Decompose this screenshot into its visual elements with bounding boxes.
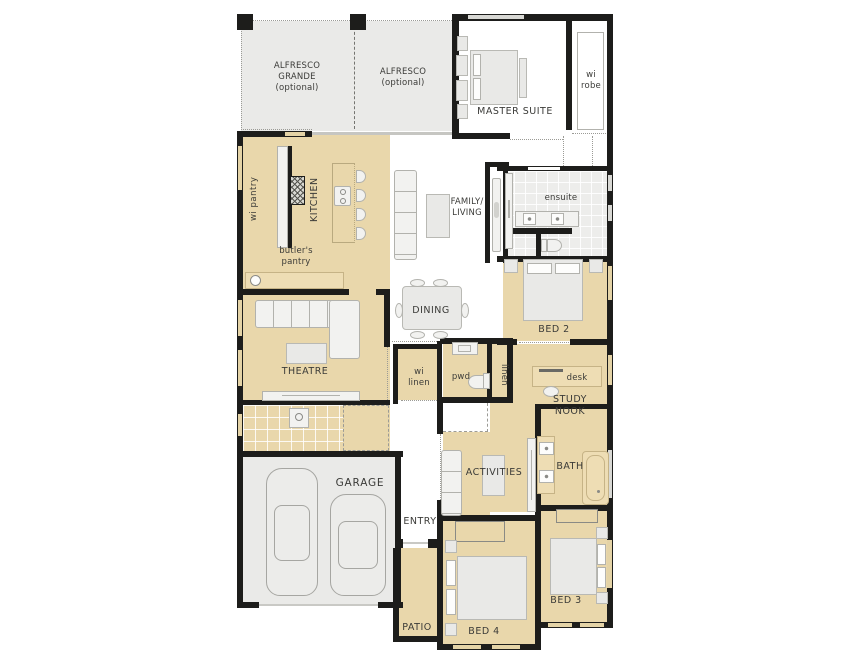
- bed4-pillow: [446, 560, 456, 586]
- pwd-basin-bowl: [458, 345, 471, 352]
- car-roof: [274, 505, 310, 561]
- bed4-bed: [457, 556, 527, 620]
- bed2-robe-end: [504, 259, 518, 273]
- room-label-entry: ENTRY: [394, 516, 446, 528]
- room-label-family-living: FAMILY/ LIVING: [436, 197, 498, 219]
- hall-notch-dashed: [443, 403, 488, 432]
- bed4-pillow: [446, 589, 456, 615]
- bed2-robe-end: [589, 259, 603, 273]
- alfresco-edge-dotted: [243, 129, 312, 130]
- master-hall-dotted: [510, 139, 563, 140]
- basin: [523, 213, 536, 225]
- wall: [452, 14, 459, 139]
- window: [238, 350, 242, 386]
- activities-sofa: [441, 450, 462, 516]
- bed3-pillow: [597, 544, 606, 565]
- bed3-pillow: [597, 567, 606, 588]
- room-label-garage: GARAGE: [322, 477, 398, 491]
- room-label-desk: desk: [556, 373, 598, 384]
- bed4-robe: [455, 521, 505, 542]
- basin: [539, 442, 554, 455]
- room-label-wi-robe: wi robe: [572, 70, 610, 92]
- room-label-dining: DINING: [399, 305, 463, 317]
- room-label-ensuite: ensuite: [529, 193, 593, 204]
- desk-monitor: [539, 369, 563, 372]
- room-label-master-suite: MASTER SUITE: [460, 106, 570, 118]
- window: [285, 132, 305, 136]
- floor-plan: ALFRESCO GRANDE (optional) ALFRESCO (opt…: [0, 0, 855, 652]
- bed3-robe: [556, 509, 598, 523]
- bed3-bedside: [596, 527, 608, 539]
- alfresco-edge-dotted: [241, 22, 242, 130]
- laundry-sink-drain: [295, 413, 303, 421]
- room-label-alfresco: ALFRESCO (optional): [354, 67, 452, 89]
- window: [468, 15, 524, 19]
- window: [608, 355, 612, 385]
- room-label-bed3: BED 3: [534, 595, 598, 607]
- bed4-bedside: [445, 540, 457, 553]
- stacker-door-glazing: [312, 132, 452, 135]
- theatre-chaise: [329, 300, 360, 359]
- wall: [237, 451, 403, 457]
- shower-handle: [508, 200, 510, 218]
- window: [608, 205, 612, 221]
- wall: [452, 133, 510, 139]
- theatre-coffee-table: [286, 343, 327, 364]
- window: [607, 540, 612, 588]
- bathtub-drain: [597, 490, 600, 493]
- butlers-sink: [250, 275, 261, 286]
- master-pillow: [473, 54, 481, 76]
- master-bedside: [457, 36, 468, 51]
- front-door-line: [403, 542, 428, 544]
- wall: [393, 344, 442, 349]
- master-bench: [519, 58, 527, 98]
- car: [266, 468, 318, 596]
- car: [330, 494, 386, 596]
- basin: [551, 213, 564, 225]
- theatre-media-unit: [262, 391, 360, 401]
- master-bedside: [456, 55, 468, 76]
- toilet-tank: [483, 373, 490, 389]
- window: [608, 266, 612, 300]
- room-label-linen: linen: [491, 351, 509, 399]
- cooktop-burner: [340, 189, 346, 195]
- wall: [535, 505, 541, 650]
- wall: [384, 289, 390, 347]
- wall: [393, 636, 439, 642]
- dining-chair: [433, 279, 448, 287]
- window: [548, 623, 572, 627]
- room-label-butlers-pantry: butler's pantry: [256, 246, 336, 268]
- dining-chair: [433, 331, 448, 339]
- robe-opening-dotted: [572, 133, 606, 134]
- mud-area-dashed: [343, 405, 389, 451]
- room-label-bed2: BED 2: [522, 324, 586, 336]
- master-hall-dotted: [563, 136, 564, 166]
- cooktop-burner: [340, 198, 346, 204]
- theatre-opening-dotted: [387, 347, 388, 400]
- wall: [237, 602, 259, 608]
- window: [492, 645, 520, 649]
- room-label-patio: PATIO: [393, 622, 441, 634]
- door-gap: [528, 167, 560, 170]
- wall: [437, 402, 443, 434]
- garage-door-line: [259, 604, 378, 606]
- wall: [350, 14, 366, 30]
- window: [238, 300, 242, 336]
- cooktop-oven: [290, 176, 305, 205]
- room-label-wi-pantry: wi pantry: [249, 155, 267, 243]
- toilet-bowl: [547, 239, 562, 252]
- room-label-wi-linen: wi linen: [397, 367, 441, 389]
- pantry-bench: [277, 146, 288, 248]
- room-label-kitchen: KITCHEN: [309, 155, 327, 245]
- dining-chair: [410, 331, 425, 339]
- family-sofa: [394, 170, 417, 260]
- room-label-bath: BATH: [546, 461, 594, 473]
- alfresco-edge-dotted: [243, 20, 452, 21]
- dining-opening-dotted: [392, 341, 437, 342]
- wall: [237, 289, 349, 295]
- window: [453, 645, 481, 649]
- window: [238, 414, 242, 436]
- room-label-bed4: BED 4: [452, 626, 516, 638]
- room-label-theatre: THEATRE: [263, 366, 347, 378]
- bed2-pillow: [555, 263, 580, 274]
- master-hall-dotted: [592, 136, 593, 166]
- bed3-bed: [550, 538, 597, 595]
- room-label-alfresco-grande: ALFRESCO GRANDE (optional): [247, 61, 347, 94]
- bed2-pillow: [527, 263, 552, 274]
- room-label-study-nook: STUDY NOOK: [539, 394, 601, 419]
- wall: [570, 339, 613, 345]
- wall: [237, 14, 253, 30]
- media-unit-line: [282, 395, 340, 396]
- master-pillow: [473, 78, 481, 100]
- car-roof: [338, 521, 378, 569]
- wall: [395, 539, 403, 548]
- window: [608, 175, 612, 191]
- bed2-opening-dotted: [519, 342, 569, 343]
- window: [580, 623, 604, 627]
- room-label-pwd: pwd: [441, 372, 481, 383]
- entry-opening-dotted: [401, 400, 437, 401]
- master-bedside: [456, 80, 468, 101]
- window: [238, 146, 242, 190]
- room-label-activities: ACTIVITIES: [452, 467, 536, 479]
- dining-chair: [410, 279, 425, 287]
